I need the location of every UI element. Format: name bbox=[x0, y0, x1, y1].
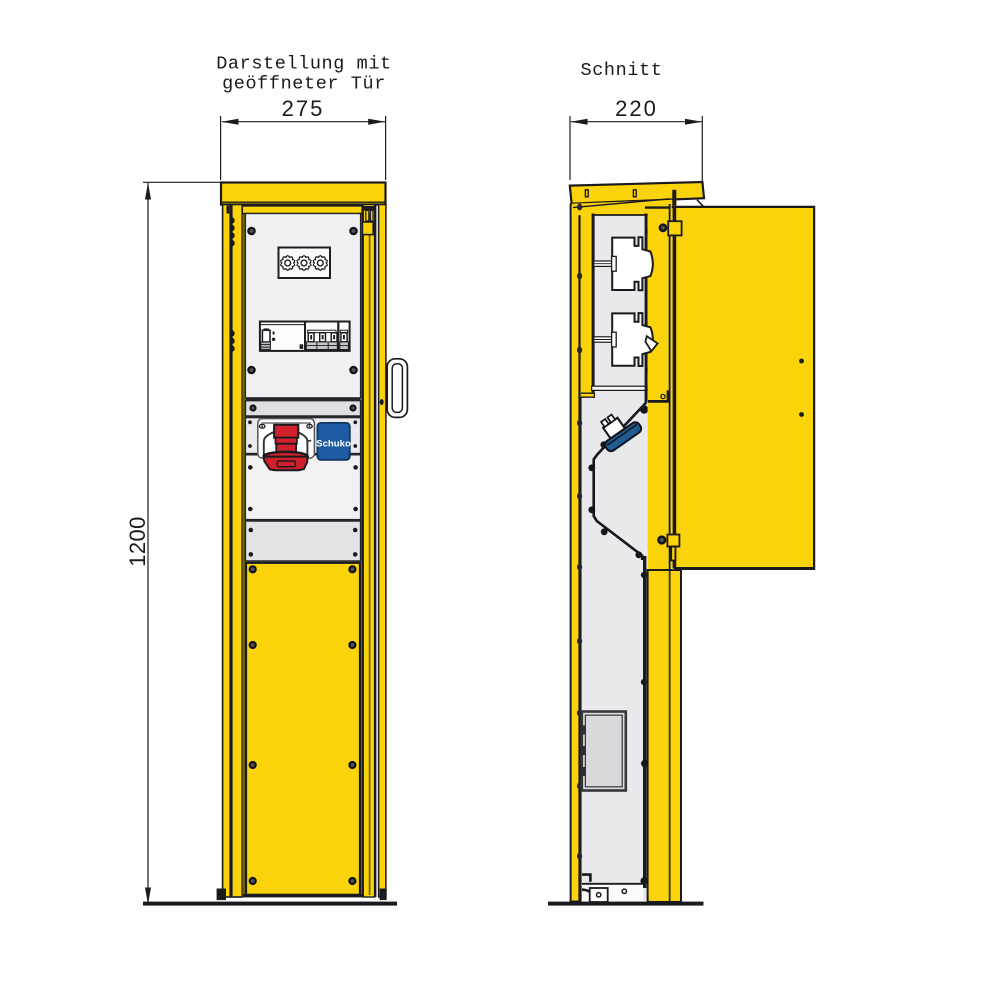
svg-text:275: 275 bbox=[282, 96, 325, 121]
svg-text:1200: 1200 bbox=[125, 516, 150, 567]
svg-text:Schuko: Schuko bbox=[316, 439, 351, 450]
svg-text:geöffneter Tür: geöffneter Tür bbox=[222, 74, 386, 95]
svg-text:Schnitt: Schnitt bbox=[581, 60, 663, 81]
svg-text:220: 220 bbox=[615, 96, 658, 121]
svg-text:Darstellung mit: Darstellung mit bbox=[216, 54, 392, 75]
